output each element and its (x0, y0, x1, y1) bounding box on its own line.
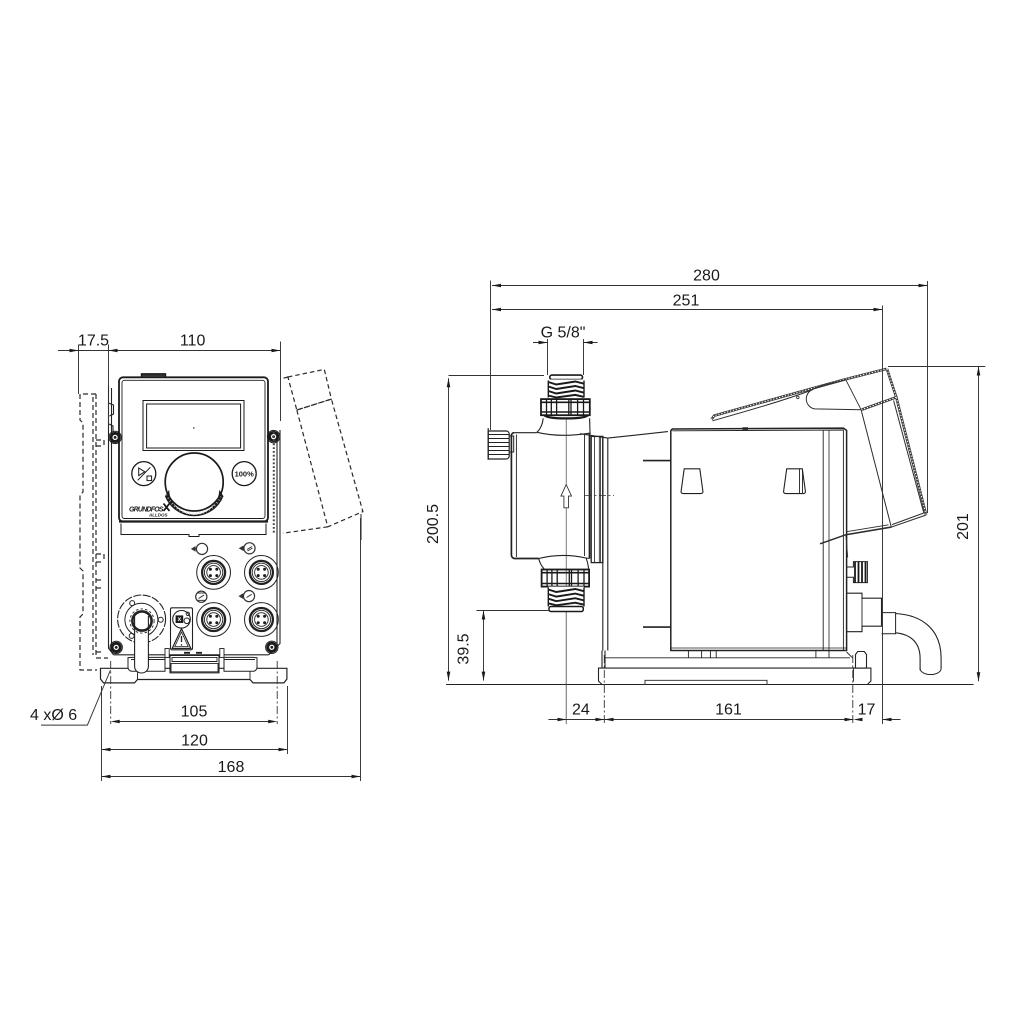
svg-text:G 5/8": G 5/8" (541, 325, 586, 342)
svg-text:24: 24 (572, 701, 590, 718)
svg-text:39.5: 39.5 (456, 633, 473, 664)
svg-text:17.5: 17.5 (78, 333, 109, 350)
svg-text:105: 105 (181, 704, 208, 721)
svg-text:100%: 100% (235, 469, 255, 478)
svg-text:200.5: 200.5 (425, 504, 442, 544)
svg-text:280: 280 (693, 268, 720, 285)
svg-text:ALLDOS: ALLDOS (148, 512, 168, 517)
svg-text:251: 251 (673, 292, 700, 309)
svg-text:201: 201 (955, 513, 972, 540)
svg-text:168: 168 (218, 759, 245, 776)
svg-text:17: 17 (858, 701, 876, 718)
svg-text:110: 110 (180, 333, 206, 350)
svg-text:4 xØ 6: 4 xØ 6 (30, 707, 77, 724)
svg-text:161: 161 (715, 701, 742, 718)
svg-text:120: 120 (181, 732, 208, 749)
